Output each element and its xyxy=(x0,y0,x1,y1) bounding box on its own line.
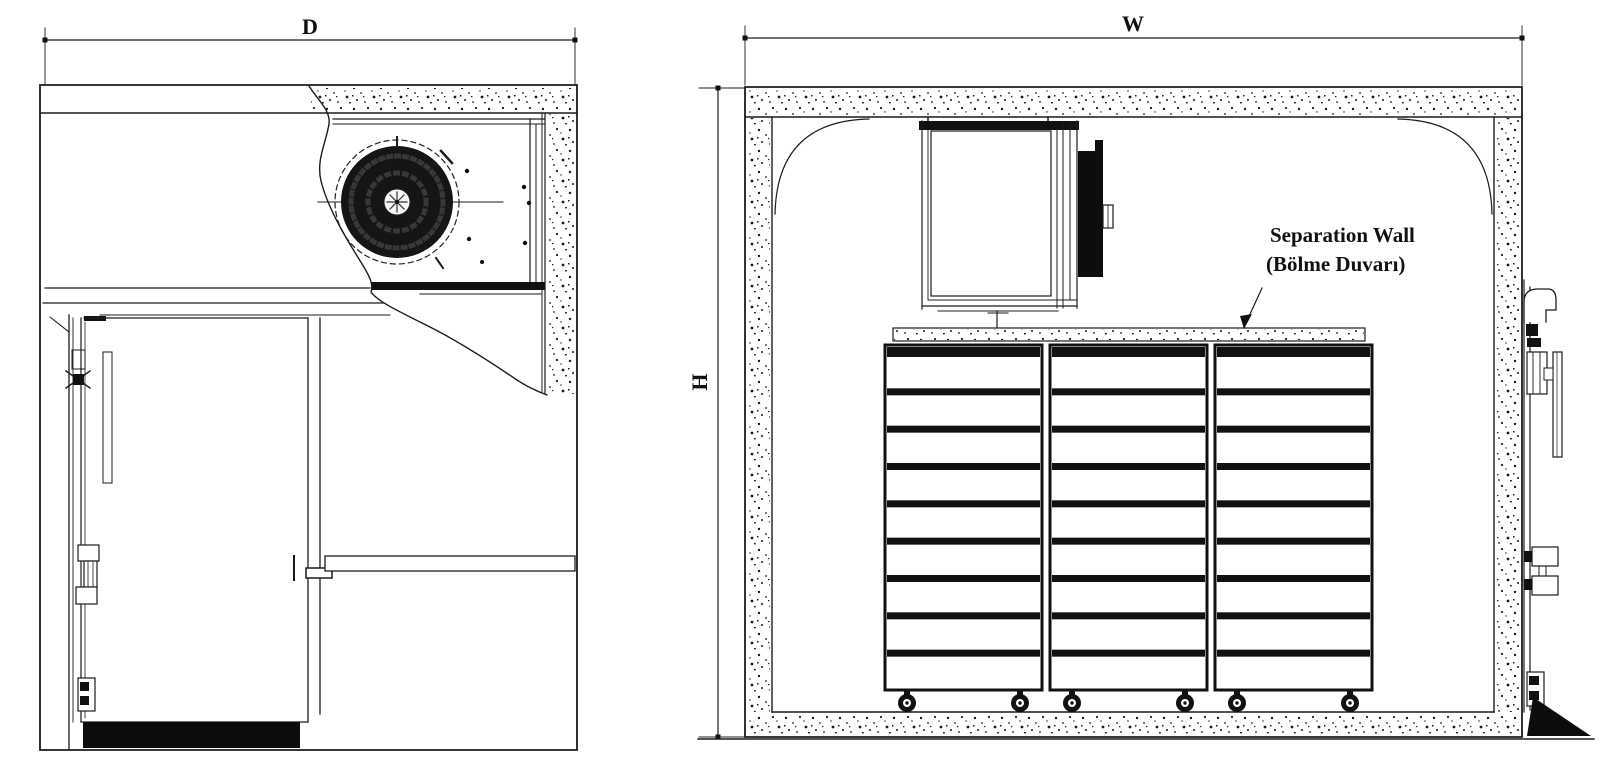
left-corner-cove xyxy=(775,119,869,214)
door-section xyxy=(66,315,332,750)
rack-wheel-icon xyxy=(1063,690,1081,712)
rack-shelf-bar xyxy=(887,575,1040,582)
dimension-height-label: H xyxy=(687,373,712,390)
bottom-hinge xyxy=(78,678,95,711)
ceiling-insulation-texture xyxy=(311,88,575,111)
rack-top-band xyxy=(887,347,1040,357)
right-wall-insulation-texture xyxy=(548,114,575,394)
ceiling-insulation-texture xyxy=(747,89,1520,115)
rack-shelf-bar xyxy=(887,388,1040,395)
rack-shelf-bar xyxy=(1217,388,1370,395)
rack-wheel-icon xyxy=(898,690,916,712)
rack-top-band xyxy=(1217,347,1370,357)
rack-shelf-bar xyxy=(887,612,1040,619)
storage-rack xyxy=(1215,345,1372,712)
technical-drawing-canvas: D xyxy=(0,0,1600,783)
door-edge-hardware xyxy=(1524,280,1591,736)
separation-wall xyxy=(893,328,1365,341)
storage-racks xyxy=(885,345,1372,712)
evaporator-unit xyxy=(919,117,1113,328)
rack-shelf-bar xyxy=(1217,538,1370,545)
rack-shelf-bar xyxy=(1052,538,1205,545)
storage-rack xyxy=(1050,345,1207,712)
side-section-view: D xyxy=(40,14,578,750)
storage-rack xyxy=(885,345,1042,712)
rack-shelf-bar xyxy=(887,463,1040,470)
cold-room-drawing: D xyxy=(0,0,1600,783)
rack-shelf-bar xyxy=(1052,500,1205,507)
rack-shelf-bar xyxy=(1052,388,1205,395)
lock-keeper xyxy=(1524,547,1558,595)
dimension-height: H xyxy=(687,86,744,740)
rack-shelf-bar xyxy=(1052,612,1205,619)
separation-wall-label-line1: Separation Wall xyxy=(1270,223,1415,247)
door-threshold xyxy=(83,722,300,748)
dimension-width: W xyxy=(743,11,1525,85)
floor-insulation-texture xyxy=(747,713,1520,736)
rack-shelf-bar xyxy=(1217,426,1370,433)
leader-arrowhead-icon xyxy=(1240,314,1252,329)
rack-shelf-bar xyxy=(1217,575,1370,582)
rack-shelf-bar xyxy=(887,500,1040,507)
fan-icon xyxy=(318,137,531,268)
rack-shelf-bar xyxy=(1052,575,1205,582)
rack-wheel-icon xyxy=(1176,690,1194,712)
rack-wheel-icon xyxy=(1011,690,1029,712)
door-lintel xyxy=(43,288,390,332)
rack-shelf-bar xyxy=(1052,650,1205,657)
rack-shelf-bar xyxy=(1052,426,1205,433)
door-ramp xyxy=(1527,697,1591,736)
rack-shelf-bar xyxy=(1217,650,1370,657)
hinge-plate xyxy=(103,352,112,483)
dimension-width-label: W xyxy=(1122,11,1144,36)
hinge-arm-bracket xyxy=(1524,289,1556,322)
door-handle-bar xyxy=(1544,352,1562,457)
rack-wheel-icon xyxy=(1341,690,1359,712)
rack-shelf-bar xyxy=(1217,612,1370,619)
separation-wall-annotation: Separation Wall (Bölme Duvarı) xyxy=(1240,223,1415,329)
rack-wheel-icon xyxy=(1228,690,1246,712)
housing-bottom-plate xyxy=(371,282,545,290)
rack-shelf-bar xyxy=(1052,463,1205,470)
separation-wall-label-line2: (Bölme Duvarı) xyxy=(1266,252,1405,276)
rack-shelf-bar xyxy=(887,426,1040,433)
fan-motor-block xyxy=(1078,140,1113,277)
door-latch xyxy=(76,545,99,604)
interior-shelf xyxy=(325,556,575,571)
rack-shelf-bar xyxy=(887,538,1040,545)
front-view: W H xyxy=(687,11,1594,740)
rack-shelf-bar xyxy=(1217,500,1370,507)
right-corner-cove xyxy=(1398,119,1492,214)
rack-top-band xyxy=(1052,347,1205,357)
dimension-depth: D xyxy=(43,14,578,84)
right-wall-insulation-texture xyxy=(1496,118,1520,712)
rack-shelf-bar xyxy=(1217,463,1370,470)
dimension-depth-label: D xyxy=(302,14,318,39)
left-wall-insulation-texture xyxy=(747,118,770,712)
rack-shelf-bar xyxy=(887,650,1040,657)
